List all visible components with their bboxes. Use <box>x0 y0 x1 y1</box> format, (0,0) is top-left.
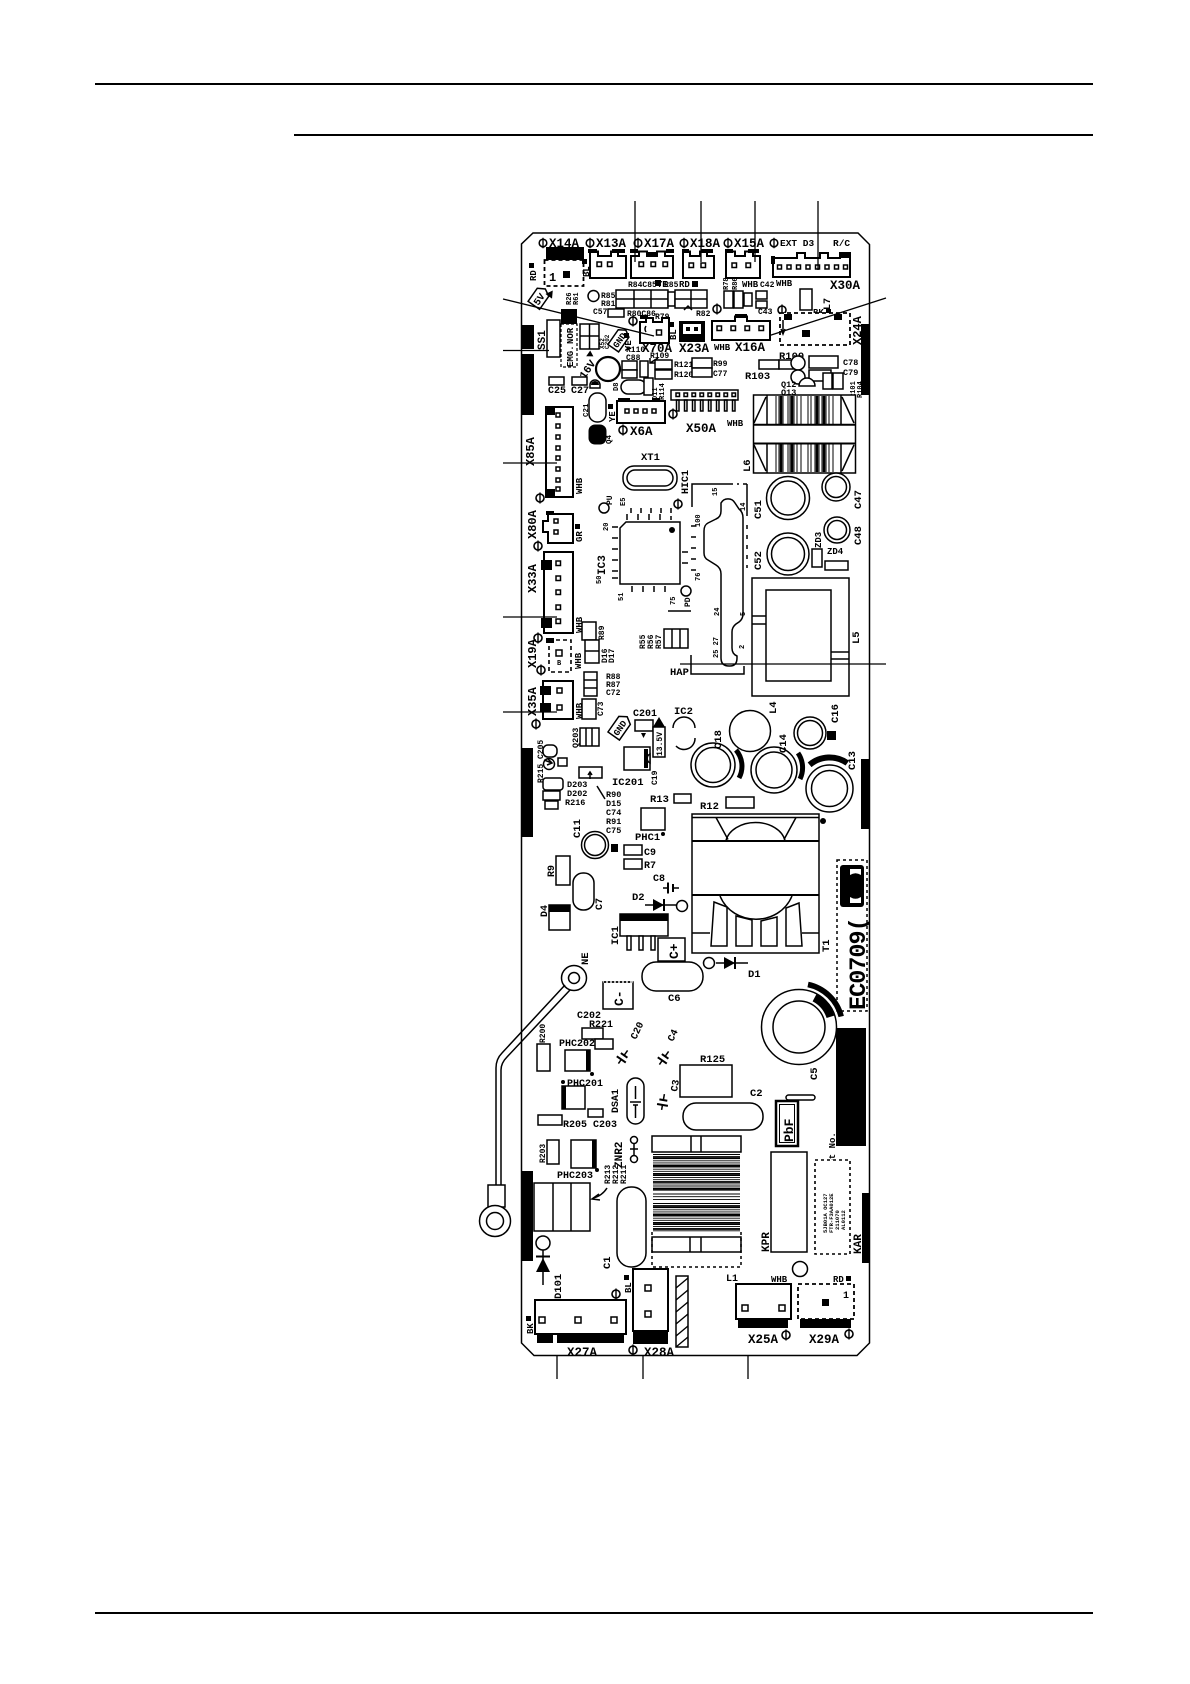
svg-text:R13: R13 <box>650 794 669 806</box>
svg-text:13.5V: 13.5V <box>656 732 665 756</box>
svg-text:R99: R99 <box>713 360 728 369</box>
svg-text:PU: PU <box>606 495 615 505</box>
svg-text:GR: GR <box>575 531 585 542</box>
svg-text:RD: RD <box>529 270 539 281</box>
svg-text:C16: C16 <box>830 704 842 723</box>
svg-text:R86: R86 <box>732 277 740 290</box>
svg-text:X18A: X18A <box>690 237 721 251</box>
svg-text:KAR: KAR <box>853 1234 865 1254</box>
svg-text:X24A: X24A <box>851 315 865 345</box>
svg-text:X16A: X16A <box>735 341 766 355</box>
svg-text:T1: T1 <box>821 939 833 952</box>
svg-text:C77: C77 <box>713 370 728 379</box>
svg-text:C48: C48 <box>853 526 865 545</box>
svg-text:WHB: WHB <box>575 702 585 719</box>
svg-text:R57: R57 <box>655 634 664 649</box>
svg-text:WHB: WHB <box>776 279 793 289</box>
svg-text:C6: C6 <box>668 993 681 1005</box>
svg-text:C42: C42 <box>760 281 775 290</box>
svg-text:HIC1: HIC1 <box>681 470 692 494</box>
svg-text:PbF: PbF <box>782 1118 797 1142</box>
svg-text:C201: C201 <box>633 709 657 720</box>
svg-text:76: 76 <box>695 573 703 581</box>
svg-text:2: 2 <box>739 645 747 649</box>
svg-text:R84C85YE: R84C85YE <box>628 280 668 290</box>
svg-text:IC201: IC201 <box>612 777 644 789</box>
svg-text:D8: D8 <box>613 383 621 391</box>
svg-text:R120: R120 <box>674 371 693 380</box>
svg-text:C20: C20 <box>630 1021 648 1042</box>
svg-text:R85: R85 <box>664 281 679 290</box>
svg-text:PD: PD <box>684 597 693 607</box>
svg-text:X13A: X13A <box>596 237 627 251</box>
svg-text:C9: C9 <box>644 848 656 859</box>
svg-text:X28A: X28A <box>644 1346 675 1360</box>
svg-text:X29A: X29A <box>809 1333 840 1347</box>
svg-text:X33A: X33A <box>526 563 540 593</box>
svg-text:X80A: X80A <box>526 509 540 539</box>
svg-text:AL0112: AL0112 <box>840 1210 847 1230</box>
svg-text:R9: R9 <box>547 865 558 877</box>
svg-text:X6A: X6A <box>630 425 653 439</box>
svg-text:WHB: WHB <box>574 652 584 669</box>
svg-text:R125: R125 <box>700 1054 725 1066</box>
svg-text:20: 20 <box>603 523 611 531</box>
svg-text:RD: RD <box>679 280 690 290</box>
svg-text:X17A: X17A <box>644 237 675 251</box>
svg-text:BL: BL <box>624 1282 634 1293</box>
svg-text:L5: L5 <box>851 631 863 644</box>
svg-text:5: 5 <box>740 612 748 616</box>
svg-text:R104: R104 <box>857 381 865 398</box>
svg-text:C27: C27 <box>571 386 589 397</box>
svg-text:100: 100 <box>695 514 703 527</box>
svg-text:L4: L4 <box>768 701 780 714</box>
svg-text:D2: D2 <box>632 892 645 904</box>
svg-text:X85A: X85A <box>524 436 538 466</box>
svg-text:D17: D17 <box>608 648 617 663</box>
svg-text:EXT D3: EXT D3 <box>780 238 815 249</box>
svg-text:R205 C203: R205 C203 <box>563 1120 617 1131</box>
svg-text:C52: C52 <box>753 551 765 570</box>
svg-text:C73: C73 <box>597 701 606 716</box>
svg-text:X30A: X30A <box>830 279 861 293</box>
svg-text:X19A: X19A <box>526 638 540 668</box>
svg-text:C-: C- <box>612 990 627 1006</box>
svg-text:C79: C79 <box>843 368 858 378</box>
svg-text:C72: C72 <box>606 689 621 698</box>
svg-text:R12: R12 <box>700 801 719 813</box>
svg-text:YE: YE <box>608 411 618 422</box>
svg-text:Q4: Q4 <box>606 434 614 444</box>
svg-text:R82: R82 <box>696 310 711 319</box>
svg-text:R/C: R/C <box>833 238 850 249</box>
svg-text:D1: D1 <box>748 969 761 981</box>
svg-text:PHC1: PHC1 <box>635 832 660 844</box>
svg-text:BL: BL <box>582 266 592 277</box>
svg-text:X25A: X25A <box>748 1333 779 1347</box>
svg-text:R103: R103 <box>745 371 770 383</box>
svg-text:50: 50 <box>596 576 604 584</box>
svg-text:15: 15 <box>712 488 720 496</box>
svg-text:C14: C14 <box>778 734 790 753</box>
svg-text:C19: C19 <box>651 770 660 785</box>
svg-text:C78: C78 <box>843 358 858 368</box>
svg-text:C2: C2 <box>750 1088 763 1100</box>
svg-text:L7: L7 <box>823 298 834 310</box>
svg-text:R200: R200 <box>539 1024 548 1043</box>
svg-text:C+: C+ <box>667 943 682 959</box>
svg-text:C7: C7 <box>595 898 606 910</box>
svg-text:R61: R61 <box>573 292 581 305</box>
svg-text:51: 51 <box>618 593 626 601</box>
svg-text:D101: D101 <box>553 1274 565 1299</box>
svg-text:KPR: KPR <box>761 1232 773 1252</box>
svg-text:C8: C8 <box>653 874 665 885</box>
svg-text:ZNR2: ZNR2 <box>614 1142 626 1168</box>
svg-text:C75: C75 <box>606 826 621 836</box>
svg-text:ZD3: ZD3 <box>814 532 824 548</box>
svg-text:R211: R211 <box>620 1165 629 1184</box>
svg-text:C47: C47 <box>853 490 865 509</box>
svg-text:WHB: WHB <box>714 343 731 353</box>
svg-text:1: 1 <box>549 271 556 285</box>
svg-text:ZD4: ZD4 <box>827 547 844 557</box>
svg-text:WHB: WHB <box>575 477 585 494</box>
svg-text:R89: R89 <box>598 625 607 640</box>
svg-text:C11: C11 <box>572 819 584 838</box>
svg-text:IC3: IC3 <box>597 555 609 575</box>
svg-text:L6: L6 <box>742 459 754 472</box>
svg-text:R216: R216 <box>565 798 585 808</box>
svg-text:BL: BL <box>669 329 679 340</box>
svg-text:C4: C4 <box>667 1028 682 1044</box>
svg-text:EMG.: EMG. <box>566 345 576 367</box>
svg-text:C5: C5 <box>809 1067 821 1080</box>
svg-text:X15A: X15A <box>734 237 765 251</box>
svg-text:C51: C51 <box>753 500 765 519</box>
svg-text:WHB: WHB <box>742 280 759 290</box>
svg-text:C1: C1 <box>602 1256 614 1269</box>
svg-text:BK: BK <box>526 1323 536 1334</box>
svg-text:R215 C205: R215 C205 <box>537 740 546 783</box>
svg-text:75: 75 <box>670 597 678 605</box>
svg-text:WHB: WHB <box>727 419 744 429</box>
svg-text:C43: C43 <box>758 308 773 317</box>
svg-text:C18: C18 <box>713 730 725 749</box>
svg-text:R121: R121 <box>674 361 693 370</box>
svg-text:EC0709(: EC0709( <box>846 918 873 1010</box>
svg-text:NOR: NOR <box>566 327 576 344</box>
svg-text:X50A: X50A <box>686 422 717 436</box>
svg-text:24: 24 <box>714 608 722 616</box>
svg-text:C57: C57 <box>593 308 608 317</box>
svg-text:IC1: IC1 <box>610 926 622 945</box>
svg-text:1: 1 <box>843 1291 849 1302</box>
svg-text:XT1: XT1 <box>641 452 660 464</box>
svg-text:IC2: IC2 <box>674 706 693 718</box>
svg-text:14: 14 <box>740 503 748 511</box>
svg-text:NE: NE <box>580 952 592 965</box>
svg-text:25 27: 25 27 <box>713 637 721 658</box>
svg-text:R203: R203 <box>539 1144 548 1163</box>
svg-text:DSA1: DSA1 <box>611 1089 622 1113</box>
svg-text:E5: E5 <box>620 498 628 506</box>
svg-text:R78: R78 <box>723 277 731 290</box>
svg-text:X27A: X27A <box>567 1346 598 1360</box>
svg-text:PHC203: PHC203 <box>557 1171 593 1182</box>
svg-text:D4: D4 <box>540 905 551 917</box>
svg-text:HAP: HAP <box>670 667 689 679</box>
svg-text:PHC202: PHC202 <box>559 1039 595 1050</box>
svg-text:R7: R7 <box>644 861 656 872</box>
svg-text:C21: C21 <box>583 403 591 417</box>
svg-text:C25: C25 <box>548 386 566 397</box>
svg-text:R114: R114 <box>659 383 667 400</box>
svg-text:X23A: X23A <box>679 342 710 356</box>
